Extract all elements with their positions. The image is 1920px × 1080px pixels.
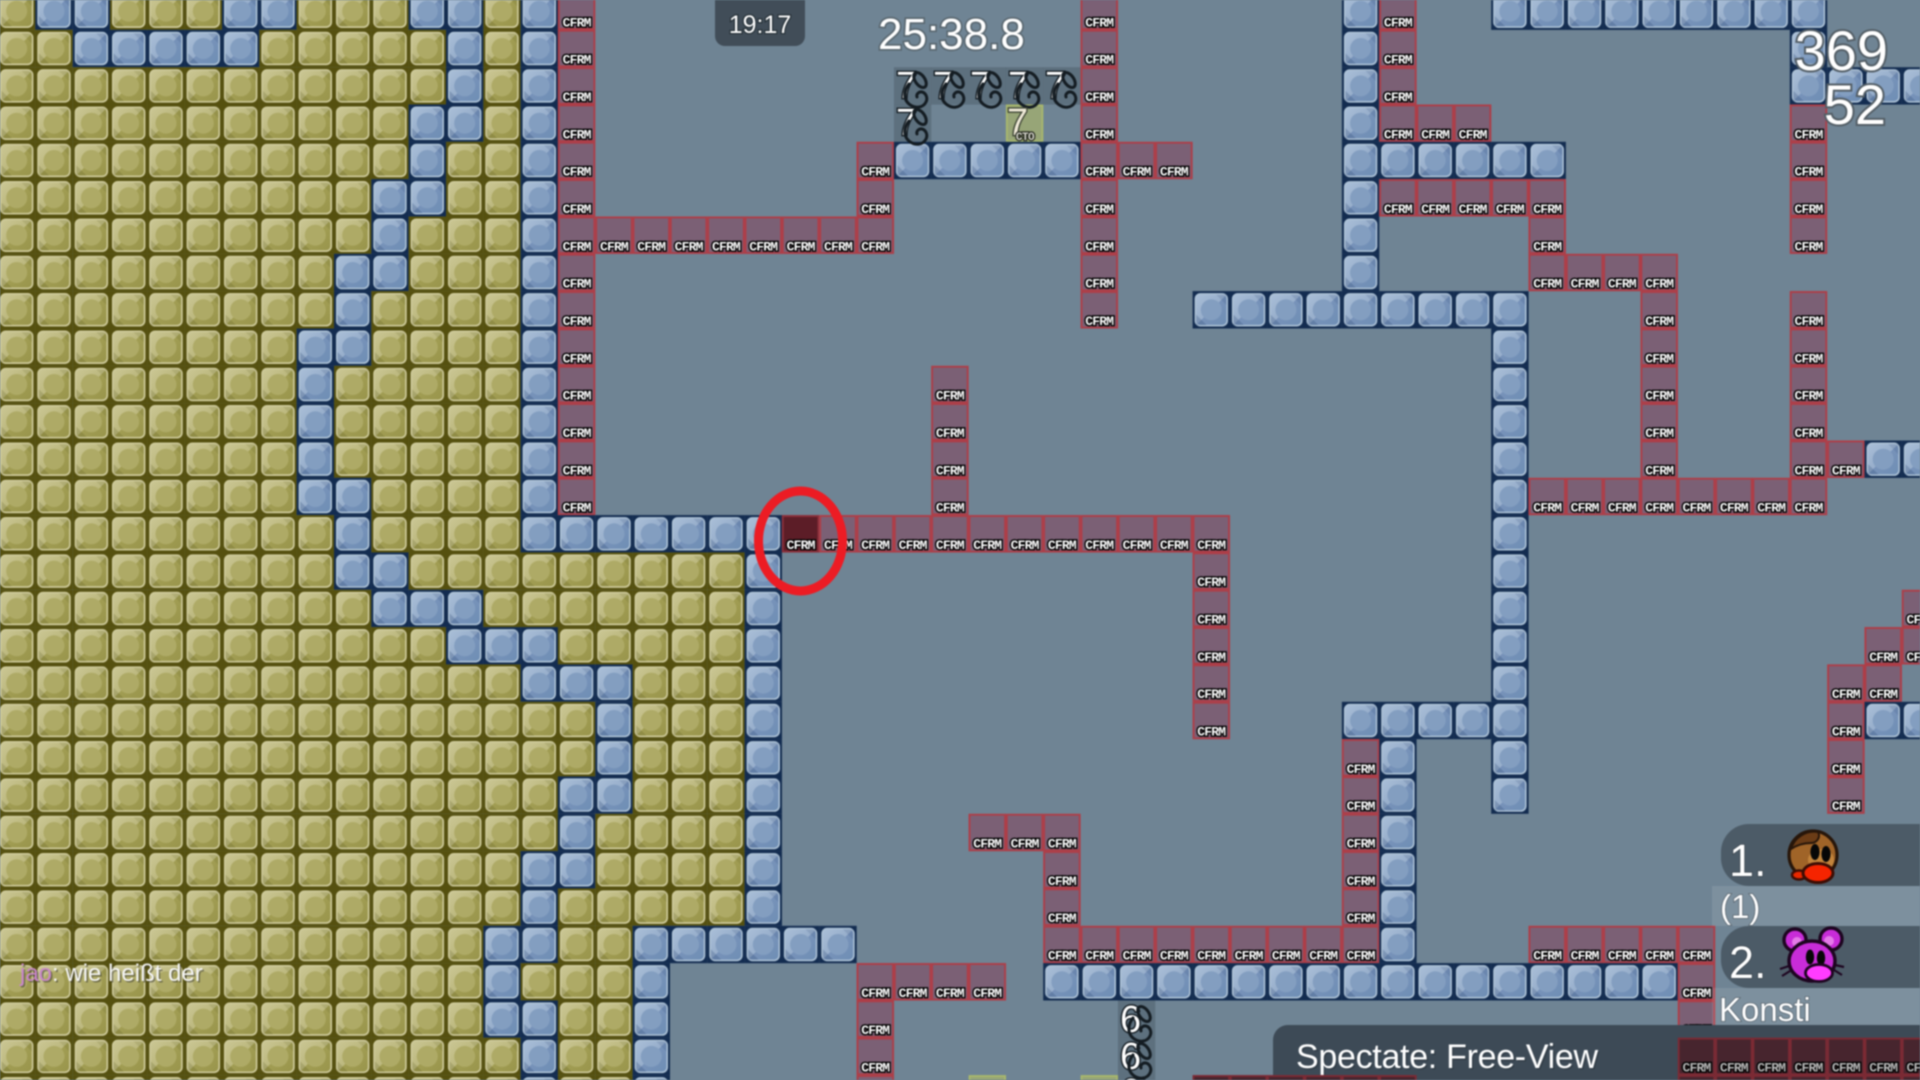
svg-text:19:17: 19:17 bbox=[729, 11, 792, 39]
svg-text:Spectate: Free-View: Spectate: Free-View bbox=[1296, 1038, 1598, 1076]
svg-text:Konsti: Konsti bbox=[1719, 991, 1811, 1028]
svg-text:52: 52 bbox=[1824, 73, 1886, 136]
svg-text:2.: 2. bbox=[1729, 937, 1767, 988]
svg-text:jao: wie heißt der: jao: wie heißt der bbox=[19, 960, 203, 987]
svg-text:CTO: CTO bbox=[1016, 132, 1035, 144]
svg-text:25:38.8: 25:38.8 bbox=[878, 10, 1025, 59]
svg-text:(1): (1) bbox=[1720, 888, 1760, 925]
svg-text:1.: 1. bbox=[1729, 835, 1767, 886]
